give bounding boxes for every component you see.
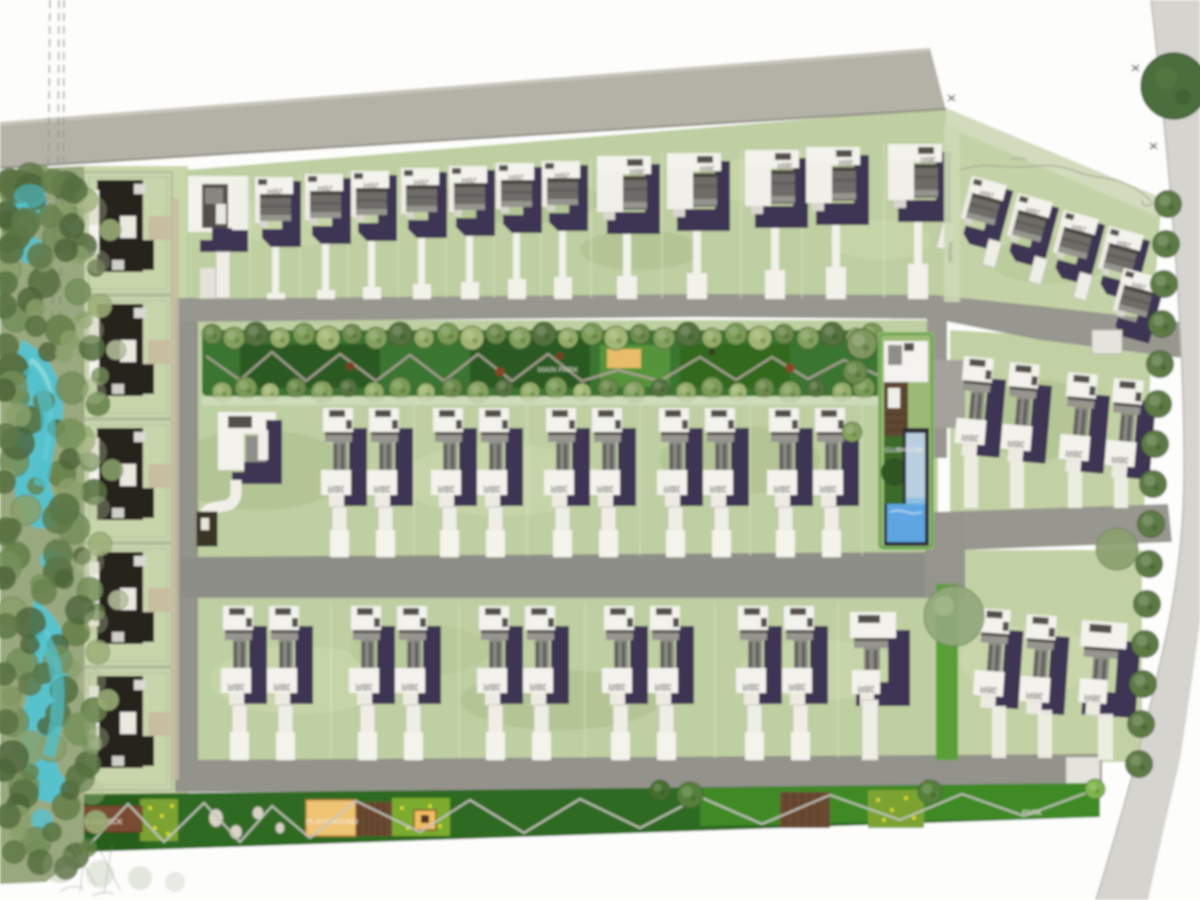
svg-text:PLAYGROUND: PLAYGROUND	[306, 817, 359, 826]
svg-text:CLUBHOUSE: CLUBHOUSE	[885, 447, 924, 454]
svg-text:MAIN PARK: MAIN PARK	[538, 365, 579, 374]
svg-text:service: service	[947, 241, 954, 262]
svg-text:existing: existing	[1010, 156, 1026, 161]
